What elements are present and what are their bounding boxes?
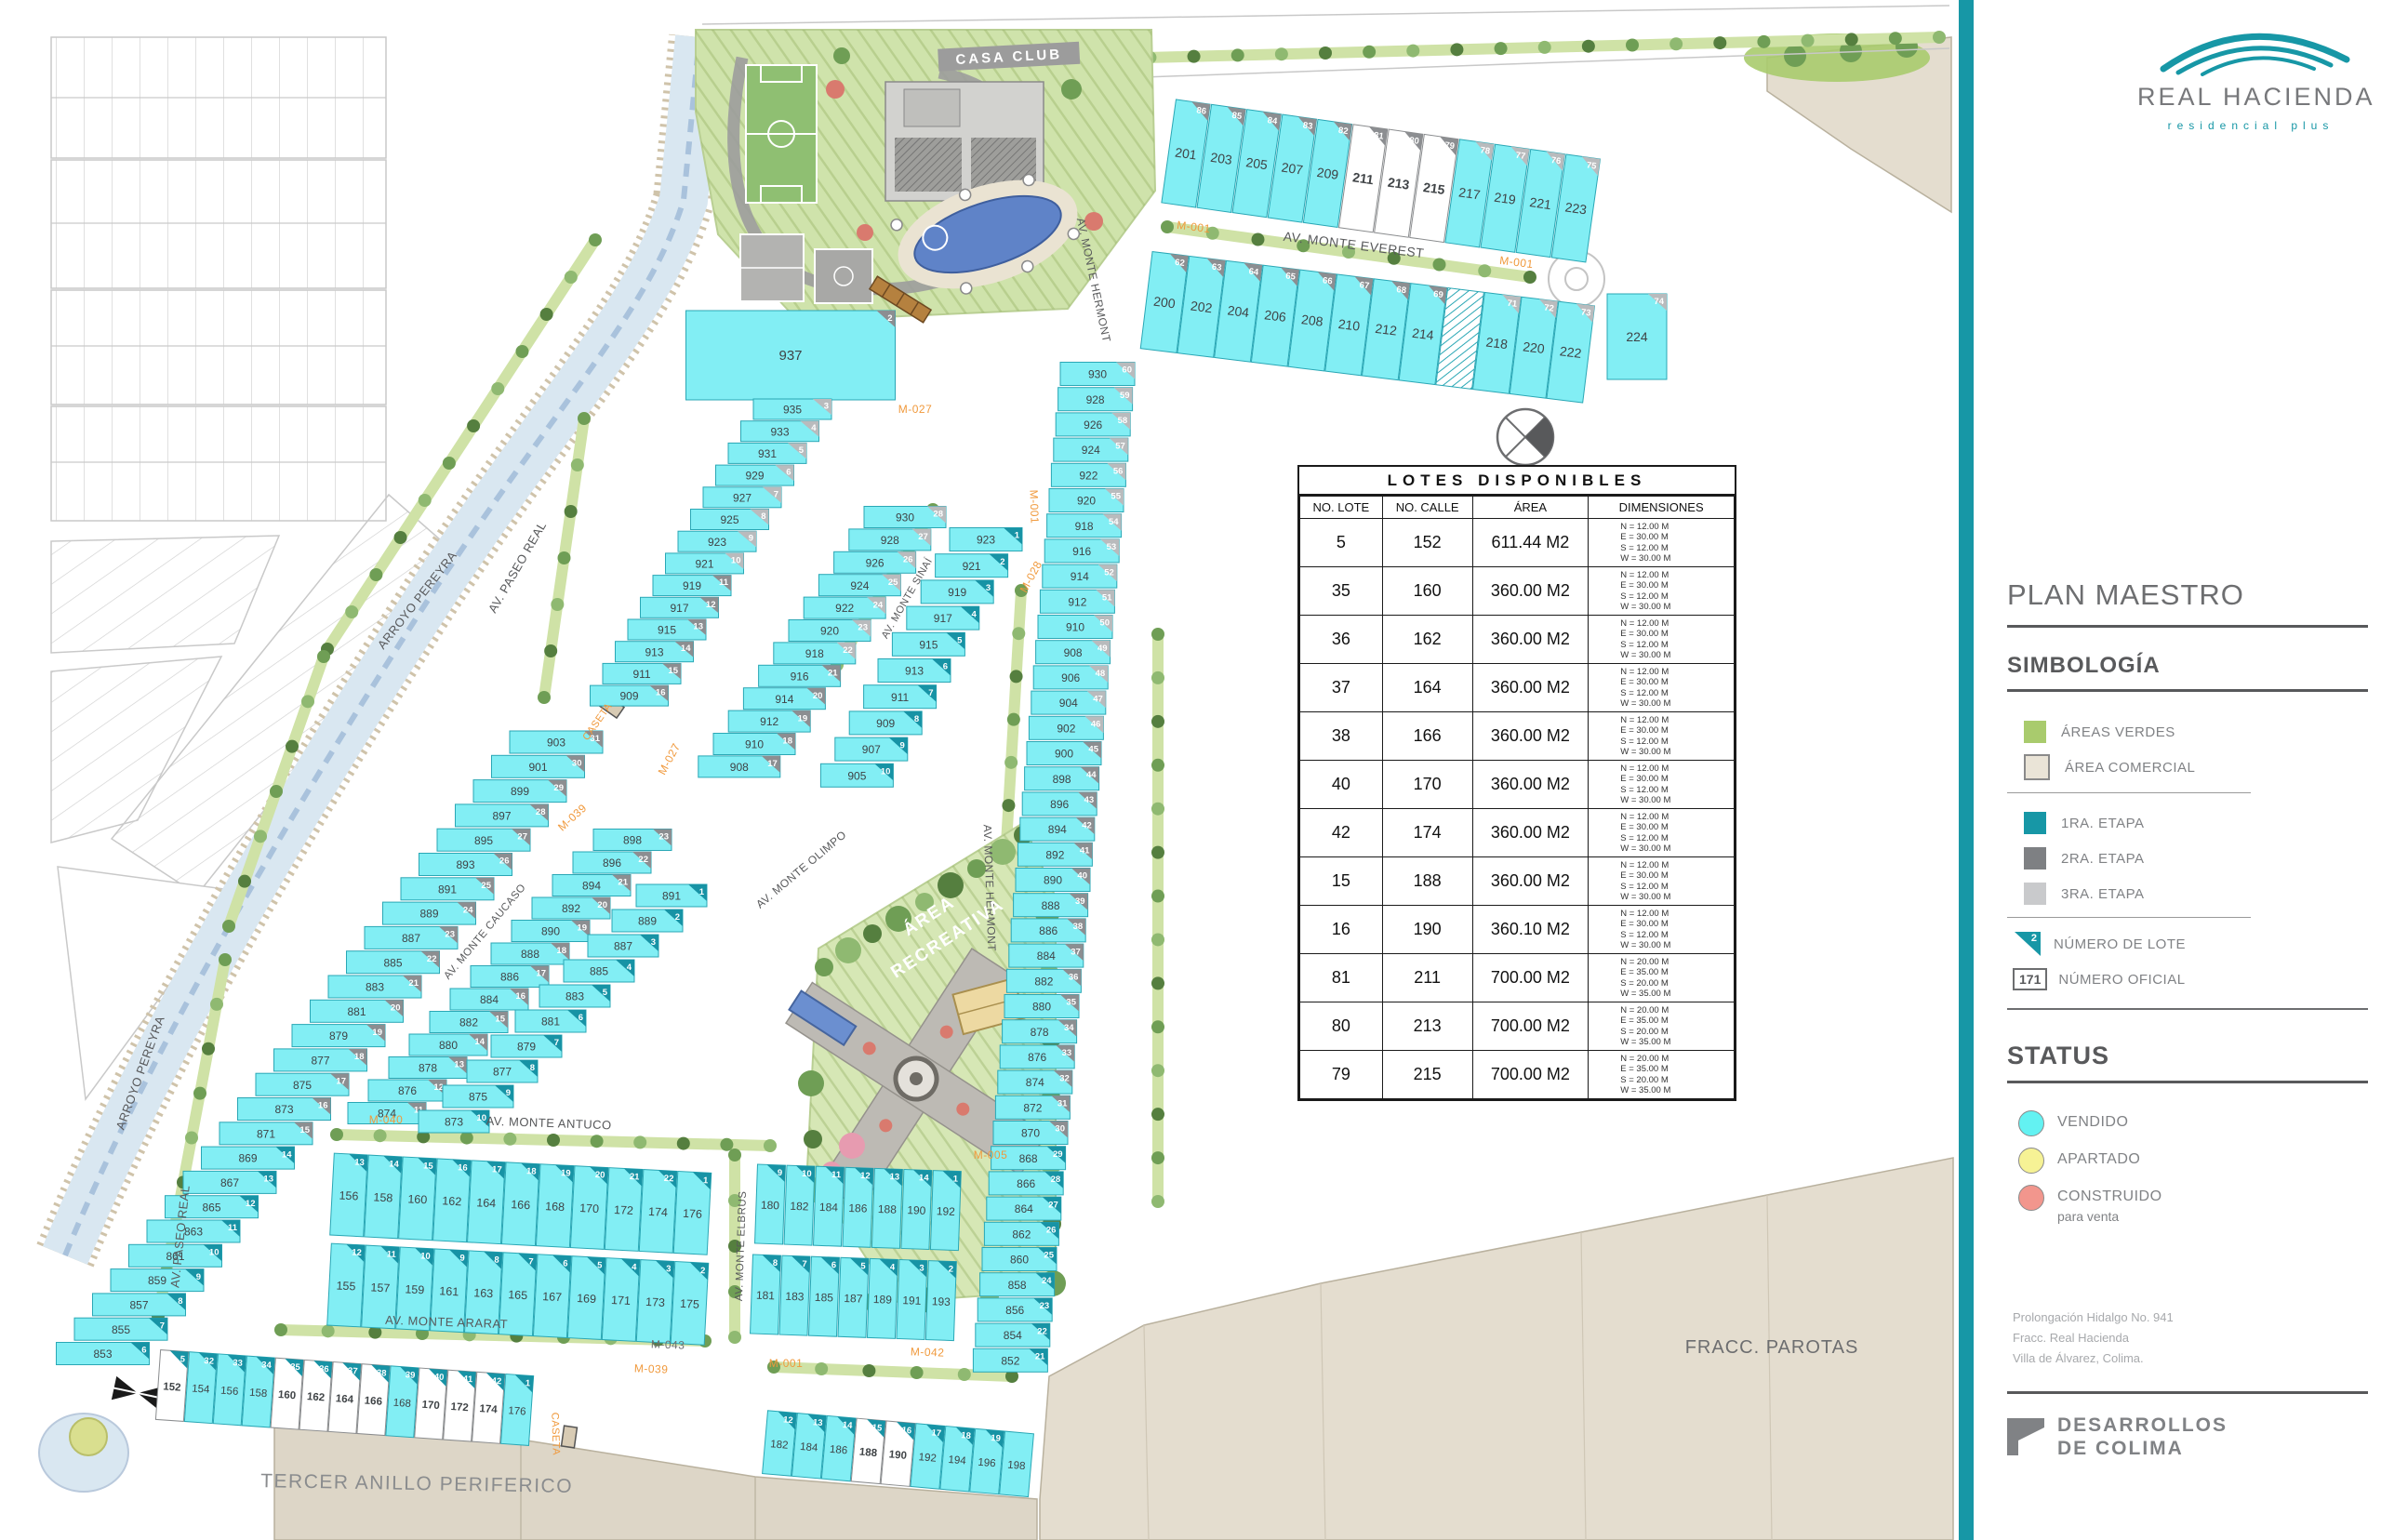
lot-periferico-west-row-160[interactable]: 16035 xyxy=(271,1358,303,1429)
map-label: M-028 xyxy=(1018,559,1045,595)
lot-hermont-column-890[interactable]: 89040 xyxy=(1016,869,1090,892)
lot-hermont-column-856[interactable]: 85623 xyxy=(978,1298,1052,1321)
svg-text:880: 880 xyxy=(439,1039,458,1052)
lot-hermont-column-876[interactable]: 87633 xyxy=(1000,1045,1074,1069)
lot-sinai-east-row-923[interactable]: 9231 xyxy=(950,528,1022,551)
lot-paseo-real-row-921[interactable]: 92110 xyxy=(666,553,744,574)
lot-sinai-east-row-919[interactable]: 9193 xyxy=(921,580,993,604)
svg-text:223: 223 xyxy=(1564,199,1589,217)
svg-text:39: 39 xyxy=(405,1370,415,1381)
lot-paseo-real-row-909[interactable]: 90916 xyxy=(591,685,669,706)
lot-block-antuco-top-174[interactable]: 17422 xyxy=(639,1170,677,1254)
lot-periferico-west-row-152[interactable]: 1525 xyxy=(155,1350,188,1422)
svg-text:875: 875 xyxy=(469,1091,487,1104)
svg-text:914: 914 xyxy=(1071,570,1089,583)
svg-text:206: 206 xyxy=(1264,307,1287,325)
lot-paseo-real-row-923[interactable]: 9239 xyxy=(678,531,756,551)
lot-paseo-real-row-919[interactable]: 91911 xyxy=(653,576,731,596)
lot-block-elbrus-bottom-185[interactable]: 1856 xyxy=(808,1256,839,1336)
lot-hermont-column-886[interactable]: 88638 xyxy=(1011,919,1085,942)
lot-mid-west-row-890[interactable]: 89019 xyxy=(512,921,590,942)
lot-hermont-column-874[interactable]: 87432 xyxy=(998,1070,1072,1094)
lot-lot-937-937[interactable]: 9372 xyxy=(686,311,896,400)
lot-periferico-west-row-172[interactable]: 17241 xyxy=(444,1370,476,1441)
lot-lot-224-224[interactable]: 22474 xyxy=(1607,294,1667,379)
lot-block-elbrus-bottom-193[interactable]: 1932 xyxy=(925,1261,956,1341)
lot-block-elbrus-top-190[interactable]: 19014 xyxy=(901,1169,932,1249)
svg-text:11: 11 xyxy=(719,577,729,588)
svg-text:923: 923 xyxy=(708,536,726,549)
lot-hermont-column-918[interactable]: 91854 xyxy=(1047,514,1122,538)
lot-mid-west-row-878[interactable]: 87813 xyxy=(389,1057,467,1079)
svg-text:17: 17 xyxy=(336,1076,346,1086)
svg-text:53: 53 xyxy=(1107,542,1117,552)
svg-text:20: 20 xyxy=(597,900,607,910)
lot-paseo-real-row-927[interactable]: 9277 xyxy=(703,487,781,508)
svg-text:192: 192 xyxy=(918,1452,937,1465)
lot-strip-block-antuco-top: 1561315814160151621616417166181681917020… xyxy=(330,1153,712,1255)
lot-block-elbrus-top-180[interactable]: 1809 xyxy=(755,1164,786,1244)
lot-west-arc-895[interactable]: 89527 xyxy=(437,829,530,851)
svg-text:903: 903 xyxy=(547,737,565,750)
svg-text:878: 878 xyxy=(1031,1026,1049,1039)
lot-hermont-column-904[interactable]: 90447 xyxy=(1031,691,1106,714)
lot-west-arc-887[interactable]: 88723 xyxy=(365,926,458,949)
lot-hermont-column-858[interactable]: 85824 xyxy=(980,1273,1055,1296)
table-row-lote-38: 38166360.00 M2N = 12.00 ME = 30.00 MS = … xyxy=(1300,712,1735,761)
svg-text:17: 17 xyxy=(536,969,546,979)
status-construido: CONSTRUIDOpara venta xyxy=(2018,1185,2162,1224)
svg-text:156: 156 xyxy=(220,1386,239,1398)
svg-text:890: 890 xyxy=(541,925,560,938)
lot-block-elbrus-bottom-187[interactable]: 1875 xyxy=(838,1257,869,1337)
svg-text:77: 77 xyxy=(1515,151,1526,162)
lot-block-elbrus-bottom-191[interactable]: 1913 xyxy=(897,1259,927,1339)
table-col-2: ÁREA xyxy=(1472,497,1589,519)
lot-periferico-west-row-158[interactable]: 15834 xyxy=(242,1356,274,1427)
svg-text:16: 16 xyxy=(656,688,666,698)
lot-hermont-column-860[interactable]: 86025 xyxy=(982,1248,1057,1271)
lot-sinai-west-row-916[interactable]: 91621 xyxy=(759,665,841,686)
lot-mid-east-row-881[interactable]: 8816 xyxy=(515,1010,586,1032)
svg-text:862: 862 xyxy=(1012,1228,1031,1241)
lot-periferico-east-row-190[interactable]: 19016 xyxy=(881,1421,915,1486)
lot-hermont-column-898[interactable]: 89844 xyxy=(1025,767,1099,790)
lot-block-elbrus-bottom-181[interactable]: 1818 xyxy=(751,1255,781,1334)
lot-sinai-west-row-928[interactable]: 92827 xyxy=(849,529,931,551)
lot-paseo-real-row-917[interactable]: 91712 xyxy=(641,597,719,617)
lot-west-arc-863[interactable]: 86311 xyxy=(147,1220,240,1242)
lot-block-antuco-top-160[interactable]: 16015 xyxy=(399,1157,437,1241)
lot-hermont-column-914[interactable]: 91452 xyxy=(1043,564,1117,588)
lot-paseo-real-row-915[interactable]: 91513 xyxy=(628,619,706,640)
svg-text:194: 194 xyxy=(948,1454,967,1467)
svg-text:19: 19 xyxy=(577,923,587,934)
svg-text:888: 888 xyxy=(1042,899,1060,912)
lot-periferico-west-row-162[interactable]: 16236 xyxy=(299,1360,332,1431)
lot-mid-east-row-883[interactable]: 8835 xyxy=(539,985,610,1007)
lot-west-arc-893[interactable]: 89326 xyxy=(419,854,512,876)
lot-block-antuco-top-176[interactable]: 1761 xyxy=(673,1171,712,1255)
lot-block-elbrus-top-186[interactable]: 18612 xyxy=(843,1167,873,1247)
svg-text:42: 42 xyxy=(491,1376,501,1387)
lot-hermont-column-864[interactable]: 86427 xyxy=(987,1197,1061,1220)
svg-text:188: 188 xyxy=(878,1202,898,1216)
svg-text:9: 9 xyxy=(459,1254,465,1264)
lot-mid-west-row-882[interactable]: 88215 xyxy=(430,1012,508,1033)
lot-block-antuco-top-156[interactable]: 15613 xyxy=(330,1153,368,1237)
svg-text:154: 154 xyxy=(192,1384,211,1396)
svg-text:9: 9 xyxy=(778,1168,783,1178)
svg-text:922: 922 xyxy=(835,602,854,615)
lot-west-arc-873[interactable]: 87316 xyxy=(238,1098,331,1121)
svg-text:39: 39 xyxy=(1075,896,1085,907)
lot-periferico-east-row-198[interactable]: 198 xyxy=(1000,1431,1034,1496)
lot-sinai-east-row-911[interactable]: 9117 xyxy=(864,685,937,709)
lot-hermont-column-920[interactable]: 92055 xyxy=(1049,489,1124,512)
svg-text:6: 6 xyxy=(579,1013,583,1023)
lot-west-arc-881[interactable]: 88120 xyxy=(311,1000,404,1022)
lot-west-arc-869[interactable]: 86914 xyxy=(202,1147,295,1169)
lot-hermont-column-882[interactable]: 88236 xyxy=(1006,969,1081,992)
lot-hermont-column-928[interactable]: 92859 xyxy=(1058,388,1133,411)
svg-text:12: 12 xyxy=(246,1199,256,1209)
lot-block-antuco-bottom-171[interactable]: 1714 xyxy=(602,1258,640,1342)
lot-periferico-east-row-186[interactable]: 18614 xyxy=(821,1415,856,1480)
svg-text:7: 7 xyxy=(802,1259,807,1269)
svg-text:M-040: M-040 xyxy=(369,1113,404,1126)
lot-mid-east-row-873[interactable]: 87310 xyxy=(419,1110,489,1133)
lot-west-arc-897[interactable]: 89728 xyxy=(456,804,549,827)
svg-text:169: 169 xyxy=(577,1292,597,1306)
lot-block-antuco-top-168[interactable]: 16819 xyxy=(536,1164,574,1248)
svg-text:15: 15 xyxy=(299,1125,310,1135)
lot-paseo-real-row-925[interactable]: 9258 xyxy=(691,510,769,530)
lot-hermont-column-866[interactable]: 86628 xyxy=(989,1172,1063,1195)
lot-hermont-column-900[interactable]: 90045 xyxy=(1027,742,1101,765)
lot-mid-east-row-885[interactable]: 8854 xyxy=(564,960,634,982)
svg-text:5: 5 xyxy=(603,988,608,998)
lot-block-elbrus-bottom-189[interactable]: 1894 xyxy=(867,1258,898,1338)
lot-block-elbrus-top-182[interactable]: 18210 xyxy=(784,1165,815,1245)
lot-block-elbrus-top-184[interactable]: 18411 xyxy=(813,1166,844,1246)
svg-text:883: 883 xyxy=(366,981,384,994)
svg-text:29: 29 xyxy=(553,783,564,793)
svg-text:918: 918 xyxy=(1075,520,1094,533)
lot-west-arc-891[interactable]: 89125 xyxy=(401,878,494,900)
svg-text:891: 891 xyxy=(662,890,681,903)
svg-text:14: 14 xyxy=(681,644,691,654)
lot-west-arc-859[interactable]: 8599 xyxy=(111,1269,204,1292)
lot-sinai-east-row-907[interactable]: 9079 xyxy=(835,737,908,761)
official-number-box-icon: 171 xyxy=(2013,968,2047,990)
lot-paseo-real-row-935[interactable]: 9353 xyxy=(753,399,831,419)
lot-paseo-real-row-929[interactable]: 9296 xyxy=(716,465,794,485)
svg-text:2: 2 xyxy=(675,912,680,923)
svg-text:881: 881 xyxy=(347,1005,366,1018)
svg-text:49: 49 xyxy=(1097,644,1108,654)
svg-text:21: 21 xyxy=(828,668,838,678)
lot-hermont-column-872[interactable]: 87231 xyxy=(995,1095,1070,1119)
svg-text:42: 42 xyxy=(1082,820,1092,830)
caseta-booth-icon xyxy=(562,1426,578,1448)
svg-text:10: 10 xyxy=(209,1247,219,1257)
lot-block-antuco-top-162[interactable]: 16216 xyxy=(433,1159,472,1242)
lot-mid-west-row-896[interactable]: 89622 xyxy=(573,852,651,873)
svg-text:191: 191 xyxy=(902,1294,922,1308)
lot-sinai-west-row-926[interactable]: 92626 xyxy=(834,551,916,573)
lot-block-antuco-bottom-173[interactable]: 1733 xyxy=(636,1260,674,1344)
svg-text:CASETA: CASETA xyxy=(549,1413,562,1456)
lot-periferico-east-row-184[interactable]: 18413 xyxy=(791,1414,826,1479)
svg-text:56: 56 xyxy=(1113,466,1124,476)
lot-hermont-column-892[interactable]: 89241 xyxy=(1018,843,1092,866)
lot-sinai-west-row-922[interactable]: 92224 xyxy=(804,597,885,618)
lot-periferico-west-row-164[interactable]: 16437 xyxy=(328,1362,361,1434)
svg-text:188: 188 xyxy=(858,1447,878,1460)
lot-hermont-column-888[interactable]: 88839 xyxy=(1014,894,1088,917)
lot-mid-west-row-898[interactable]: 89823 xyxy=(593,830,672,851)
svg-text:911: 911 xyxy=(891,691,909,704)
svg-text:33: 33 xyxy=(1062,1048,1072,1058)
lot-hermont-column-884[interactable]: 88437 xyxy=(1009,944,1084,967)
lot-block-antuco-bottom-169[interactable]: 1695 xyxy=(567,1256,605,1340)
svg-text:40: 40 xyxy=(1077,871,1087,882)
lot-hermont-column-870[interactable]: 87030 xyxy=(993,1122,1068,1145)
lot-west-arc-901[interactable]: 90130 xyxy=(492,755,585,777)
lot-mid-east-row-887[interactable]: 8873 xyxy=(588,935,658,957)
svg-text:11: 11 xyxy=(831,1170,842,1180)
lot-mid-west-row-876[interactable]: 87612 xyxy=(368,1080,446,1101)
table-row-lote-40: 40170360.00 M2N = 12.00 ME = 30.00 MS = … xyxy=(1300,761,1735,809)
lot-mid-east-row-889[interactable]: 8892 xyxy=(612,909,683,932)
svg-text:16: 16 xyxy=(515,991,525,1002)
svg-text:16: 16 xyxy=(318,1101,328,1111)
lot-hermont-column-854[interactable]: 85422 xyxy=(976,1323,1050,1347)
svg-text:34: 34 xyxy=(261,1360,273,1371)
lot-west-arc-855[interactable]: 8557 xyxy=(74,1318,167,1340)
svg-text:8: 8 xyxy=(494,1255,499,1265)
svg-text:887: 887 xyxy=(402,932,420,945)
lot-sinai-west-row-930[interactable]: 93028 xyxy=(864,507,946,528)
lot-hermont-column-912[interactable]: 91251 xyxy=(1040,590,1114,613)
lot-mid-west-row-894[interactable]: 89421 xyxy=(552,875,631,896)
svg-text:914: 914 xyxy=(775,693,793,706)
lot-west-arc-899[interactable]: 89929 xyxy=(473,780,566,803)
developer-logo: DESARROLLOS DE COLIMA xyxy=(2007,1414,2228,1460)
lot-sinai-west-row-912[interactable]: 91219 xyxy=(728,710,810,732)
lot-mid-east-row-877[interactable]: 8778 xyxy=(467,1060,538,1082)
lot-hermont-column-896[interactable]: 89643 xyxy=(1022,792,1097,816)
lot-periferico-west-row-174[interactable]: 17442 xyxy=(472,1372,505,1443)
lot-hermont-column-894[interactable]: 89442 xyxy=(1020,817,1095,841)
lot-block-antuco-top-172[interactable]: 17221 xyxy=(605,1168,643,1252)
lot-block-antuco-top-164[interactable]: 16417 xyxy=(468,1161,506,1244)
lot-paseo-real-row-931[interactable]: 9315 xyxy=(728,443,806,463)
lot-sinai-east-row-917[interactable]: 9174 xyxy=(907,606,979,630)
divider xyxy=(2007,1008,2368,1010)
lot-block-elbrus-top-192[interactable]: 1921 xyxy=(930,1171,961,1251)
lot-block-antuco-bottom-167[interactable]: 1676 xyxy=(533,1255,571,1338)
svg-text:185: 185 xyxy=(815,1291,834,1305)
lot-mid-east-row-879[interactable]: 8797 xyxy=(491,1035,562,1057)
svg-text:26: 26 xyxy=(903,554,913,564)
svg-text:57: 57 xyxy=(1115,441,1125,451)
lot-block-antuco-top-158[interactable]: 15814 xyxy=(365,1155,403,1239)
lot-west-arc-875[interactable]: 87517 xyxy=(256,1073,349,1095)
lot-west-arc-867[interactable]: 86713 xyxy=(183,1171,276,1193)
lot-mid-west-row-884[interactable]: 88416 xyxy=(450,989,528,1010)
svg-text:12: 12 xyxy=(706,600,716,610)
lot-paseo-real-row-933[interactable]: 9334 xyxy=(741,421,819,442)
lot-sinai-east-row-913[interactable]: 9136 xyxy=(878,659,951,683)
lot-block-antuco-bottom-155[interactable]: 15512 xyxy=(327,1243,366,1327)
lot-hermont-column-926[interactable]: 92658 xyxy=(1056,413,1130,436)
svg-text:45: 45 xyxy=(1088,745,1098,755)
svg-text:35: 35 xyxy=(290,1361,301,1373)
lot-hermont-column-910[interactable]: 91050 xyxy=(1038,616,1112,639)
lot-hermont-column-930[interactable]: 93060 xyxy=(1060,363,1135,386)
lot-hermont-column-922[interactable]: 92256 xyxy=(1051,463,1125,486)
svg-text:221: 221 xyxy=(1529,194,1553,212)
svg-text:186: 186 xyxy=(848,1201,868,1215)
lot-sinai-west-row-918[interactable]: 91822 xyxy=(774,643,856,664)
svg-text:873: 873 xyxy=(274,1103,293,1116)
svg-text:2: 2 xyxy=(887,313,892,324)
svg-text:9: 9 xyxy=(749,534,753,544)
lot-hermont-column-852[interactable]: 85221 xyxy=(973,1348,1047,1372)
svg-text:923: 923 xyxy=(977,534,995,547)
svg-text:930: 930 xyxy=(896,511,914,524)
svg-text:905: 905 xyxy=(847,769,866,782)
lot-strip-lot-937: 9372 xyxy=(686,311,896,400)
lot-sinai-east-row-905[interactable]: 90510 xyxy=(820,763,893,787)
lot-periferico-west-row-166[interactable]: 16638 xyxy=(357,1364,390,1436)
lot-periferico-east-row-188[interactable]: 18815 xyxy=(851,1418,885,1483)
lot-hermont-column-908[interactable]: 90849 xyxy=(1036,641,1111,664)
lot-block-elbrus-bottom-183[interactable]: 1837 xyxy=(779,1255,810,1335)
lot-paseo-real-row-911[interactable]: 91115 xyxy=(603,663,681,684)
lot-sinai-east-row-915[interactable]: 9155 xyxy=(892,632,964,656)
lot-periferico-west-row-156[interactable]: 15633 xyxy=(213,1354,246,1426)
legend--reas-verdes: ÁREAS VERDES xyxy=(2024,714,2195,750)
svg-text:28: 28 xyxy=(933,510,943,520)
svg-text:190: 190 xyxy=(888,1449,907,1462)
lot-hermont-column-906[interactable]: 90648 xyxy=(1033,666,1108,689)
svg-text:18: 18 xyxy=(556,946,566,956)
lot-hermont-column-916[interactable]: 91653 xyxy=(1044,539,1119,563)
svg-text:908: 908 xyxy=(1064,646,1083,659)
lot-periferico-east-row-182[interactable]: 18212 xyxy=(763,1411,797,1476)
lot-mid-west-row-880[interactable]: 88014 xyxy=(409,1034,487,1055)
address: Prolongación Hidalgo No. 941Fracc. Real … xyxy=(2013,1308,2174,1369)
svg-text:857: 857 xyxy=(129,1298,148,1311)
lot-sinai-west-row-908[interactable]: 90817 xyxy=(698,756,780,777)
divider xyxy=(2007,792,2251,793)
svg-text:73: 73 xyxy=(1580,307,1591,318)
lot-block-antuco-top-166[interactable]: 16618 xyxy=(501,1162,539,1246)
svg-text:872: 872 xyxy=(1023,1101,1042,1114)
lot-mid-west-row-888[interactable]: 88818 xyxy=(491,943,569,964)
simbologia-title: SIMBOLOGÍA xyxy=(2007,653,2368,692)
lot-mid-west-row-886[interactable]: 88617 xyxy=(471,966,549,988)
svg-text:30: 30 xyxy=(1055,1124,1065,1135)
map-label: M-001 xyxy=(769,1357,804,1370)
lot-west-arc-889[interactable]: 88924 xyxy=(383,902,476,924)
lot-hermont-column-902[interactable]: 90246 xyxy=(1029,716,1103,739)
lot-block-antuco-top-170[interactable]: 17020 xyxy=(570,1166,608,1250)
svg-text:165: 165 xyxy=(508,1288,528,1302)
lot-mid-east-row-891[interactable]: 8911 xyxy=(636,884,707,907)
lot-sinai-west-row-924[interactable]: 92425 xyxy=(818,575,900,596)
svg-text:876: 876 xyxy=(398,1084,417,1097)
svg-text:160: 160 xyxy=(278,1389,297,1401)
lot-west-arc-877[interactable]: 87718 xyxy=(274,1049,367,1071)
lot-hermont-column-880[interactable]: 88035 xyxy=(1004,995,1079,1018)
lot-hermont-column-924[interactable]: 92457 xyxy=(1054,438,1128,461)
svg-text:37: 37 xyxy=(348,1366,358,1377)
legend--rea-comercial: ÁREA COMERCIAL xyxy=(2024,750,2195,785)
lot-sinai-west-row-920[interactable]: 92023 xyxy=(789,620,871,642)
lot-paseo-real-row-913[interactable]: 91314 xyxy=(616,642,694,662)
svg-text:59: 59 xyxy=(1120,391,1130,401)
lot-sinai-east-row-909[interactable]: 9098 xyxy=(849,711,922,735)
lot-west-arc-885[interactable]: 88522 xyxy=(347,951,440,974)
lot-west-arc-879[interactable]: 87919 xyxy=(292,1025,385,1047)
svg-text:928: 928 xyxy=(881,534,899,547)
lot-periferico-west-row-168[interactable]: 16839 xyxy=(386,1366,419,1438)
svg-text:167: 167 xyxy=(542,1290,563,1304)
lot-sinai-west-row-914[interactable]: 91420 xyxy=(743,688,825,710)
map-label: M-040 xyxy=(369,1113,404,1126)
lot-block-elbrus-top-188[interactable]: 18813 xyxy=(871,1168,902,1248)
lot-periferico-west-row-170[interactable]: 17040 xyxy=(415,1368,447,1440)
lot-west-arc-857[interactable]: 8578 xyxy=(93,1294,186,1316)
lot-periferico-east-row-192[interactable]: 19217 xyxy=(911,1424,945,1489)
lot-west-arc-853[interactable]: 8536 xyxy=(57,1343,150,1365)
svg-text:1: 1 xyxy=(1015,531,1020,541)
lot-periferico-east-row-196[interactable]: 19619 xyxy=(970,1428,1004,1494)
lot-west-arc-883[interactable]: 88321 xyxy=(328,976,421,998)
svg-text:1: 1 xyxy=(699,887,705,897)
svg-text:907: 907 xyxy=(862,743,881,756)
lot-periferico-east-row-194[interactable]: 19418 xyxy=(940,1427,975,1492)
lot-block-antuco-bottom-175[interactable]: 1752 xyxy=(671,1261,709,1345)
map-label: M-043 xyxy=(651,1337,685,1351)
svg-text:859: 859 xyxy=(148,1274,166,1287)
svg-text:879: 879 xyxy=(517,1041,536,1054)
lot-periferico-west-row-154[interactable]: 15432 xyxy=(184,1352,217,1424)
svg-text:155: 155 xyxy=(336,1279,356,1293)
lot-sinai-east-row-921[interactable]: 9212 xyxy=(936,554,1008,577)
lot-mid-west-row-892[interactable]: 89220 xyxy=(532,897,610,919)
lot-west-arc-871[interactable]: 87115 xyxy=(219,1122,313,1145)
lot-hermont-column-878[interactable]: 87834 xyxy=(1003,1020,1077,1043)
svg-text:864: 864 xyxy=(1015,1202,1033,1215)
lot-periferico-west-row-176[interactable]: 1761 xyxy=(501,1374,534,1445)
svg-text:25: 25 xyxy=(1044,1251,1054,1261)
svg-text:M-005: M-005 xyxy=(974,1148,1008,1162)
svg-text:22: 22 xyxy=(843,645,853,656)
svg-text:883: 883 xyxy=(565,990,584,1003)
lot-mid-east-row-875[interactable]: 8759 xyxy=(443,1085,513,1108)
svg-text:166: 166 xyxy=(364,1395,382,1407)
lot-sinai-west-row-910[interactable]: 91018 xyxy=(713,734,795,755)
svg-text:896: 896 xyxy=(603,856,621,870)
lot-hermont-column-862[interactable]: 86226 xyxy=(984,1222,1058,1245)
svg-text:870: 870 xyxy=(1021,1127,1040,1140)
table-row-lote-35: 35160360.00 M2N = 12.00 ME = 30.00 MS = … xyxy=(1300,567,1735,616)
